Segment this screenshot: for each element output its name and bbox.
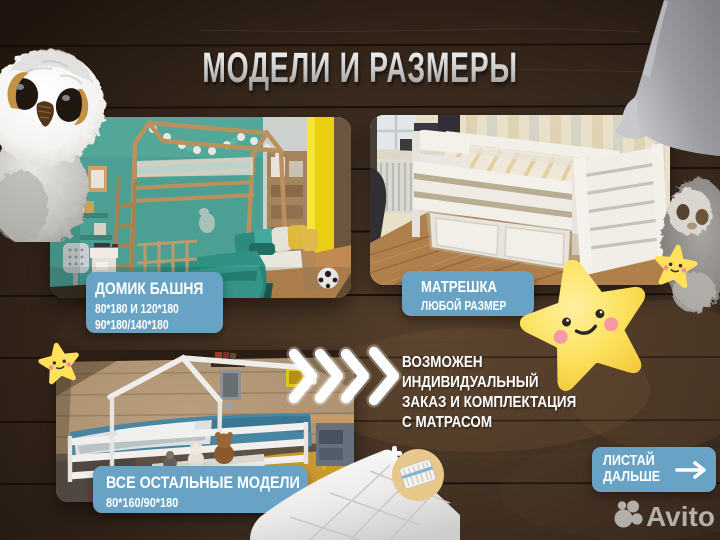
svg-text:Avito: Avito — [646, 501, 715, 530]
